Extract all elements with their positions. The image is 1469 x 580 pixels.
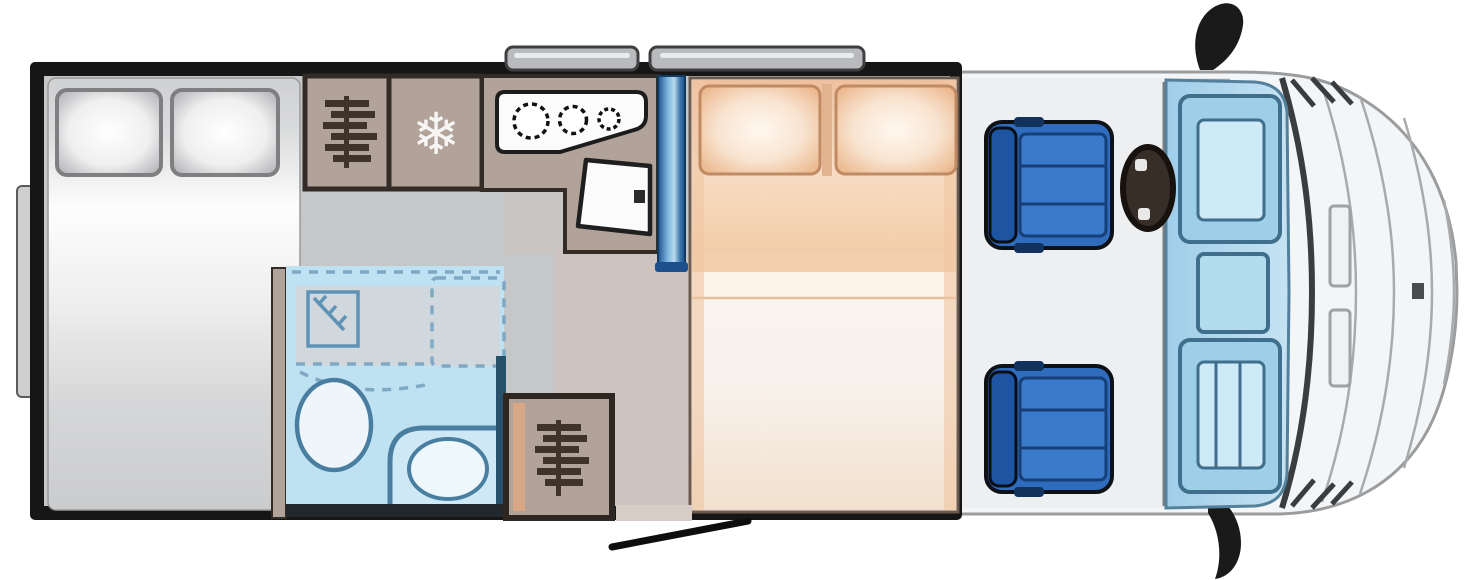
cab-center-console — [1198, 254, 1268, 332]
pillow — [700, 86, 820, 174]
motorhome-floorplan: ❄ — [0, 0, 1469, 580]
pillow-gap — [822, 84, 832, 176]
sink-tap — [634, 190, 645, 203]
seat-armrest — [1014, 243, 1044, 253]
swivel-seat-passenger — [986, 361, 1112, 497]
pillow — [172, 90, 278, 175]
shower-swivel-area — [296, 286, 500, 366]
window-over-kitchen — [506, 47, 638, 70]
top-wall-windows — [506, 47, 864, 70]
wardrobe-top — [305, 76, 389, 189]
kitchen-sink — [578, 160, 650, 234]
entry-door-opening — [616, 505, 692, 521]
seat-cushion — [1020, 134, 1106, 236]
wardrobe-shading — [513, 403, 525, 511]
seat-backrest — [990, 372, 1016, 486]
burner — [514, 104, 548, 138]
window-glass-line — [514, 53, 630, 58]
seat-armrest — [1014, 487, 1044, 497]
sheet-fold — [692, 272, 956, 298]
cab-seat-left-cushion — [1198, 120, 1264, 220]
snowflake-icon: ❄ — [412, 100, 461, 168]
bathroom-wall-left — [272, 268, 286, 518]
rear-bed — [48, 78, 300, 510]
bathroom-wall-bottom — [286, 504, 506, 517]
french-bed — [690, 78, 958, 512]
toilet — [297, 380, 371, 470]
swivel-seat-driver — [986, 117, 1112, 253]
seat-backrest — [990, 128, 1016, 242]
seat-armrest — [1014, 361, 1044, 371]
seat-armrest — [1014, 117, 1044, 127]
fridge: ❄ — [389, 76, 482, 189]
cab-interior — [962, 78, 1289, 508]
window-over-bed — [650, 47, 864, 70]
blanket-band — [692, 252, 956, 272]
washbasin-unit — [390, 428, 504, 508]
badge-mark — [1412, 283, 1424, 299]
burner — [560, 107, 587, 134]
burner — [599, 109, 619, 129]
floorplan-canvas: ❄ — [0, 0, 1469, 580]
wardrobe-bottom — [506, 396, 612, 518]
cab-seat-right-cushion — [1198, 362, 1264, 468]
pillow — [57, 90, 161, 175]
bathroom — [272, 266, 506, 518]
steering-wheel-icon — [1123, 147, 1173, 229]
pillow — [836, 86, 956, 174]
sliding-partition-door — [655, 76, 688, 272]
washbasin-bowl — [409, 439, 487, 499]
window-glass-line — [660, 53, 854, 58]
seat-cushion — [1020, 378, 1106, 480]
windscreen — [1166, 80, 1289, 508]
